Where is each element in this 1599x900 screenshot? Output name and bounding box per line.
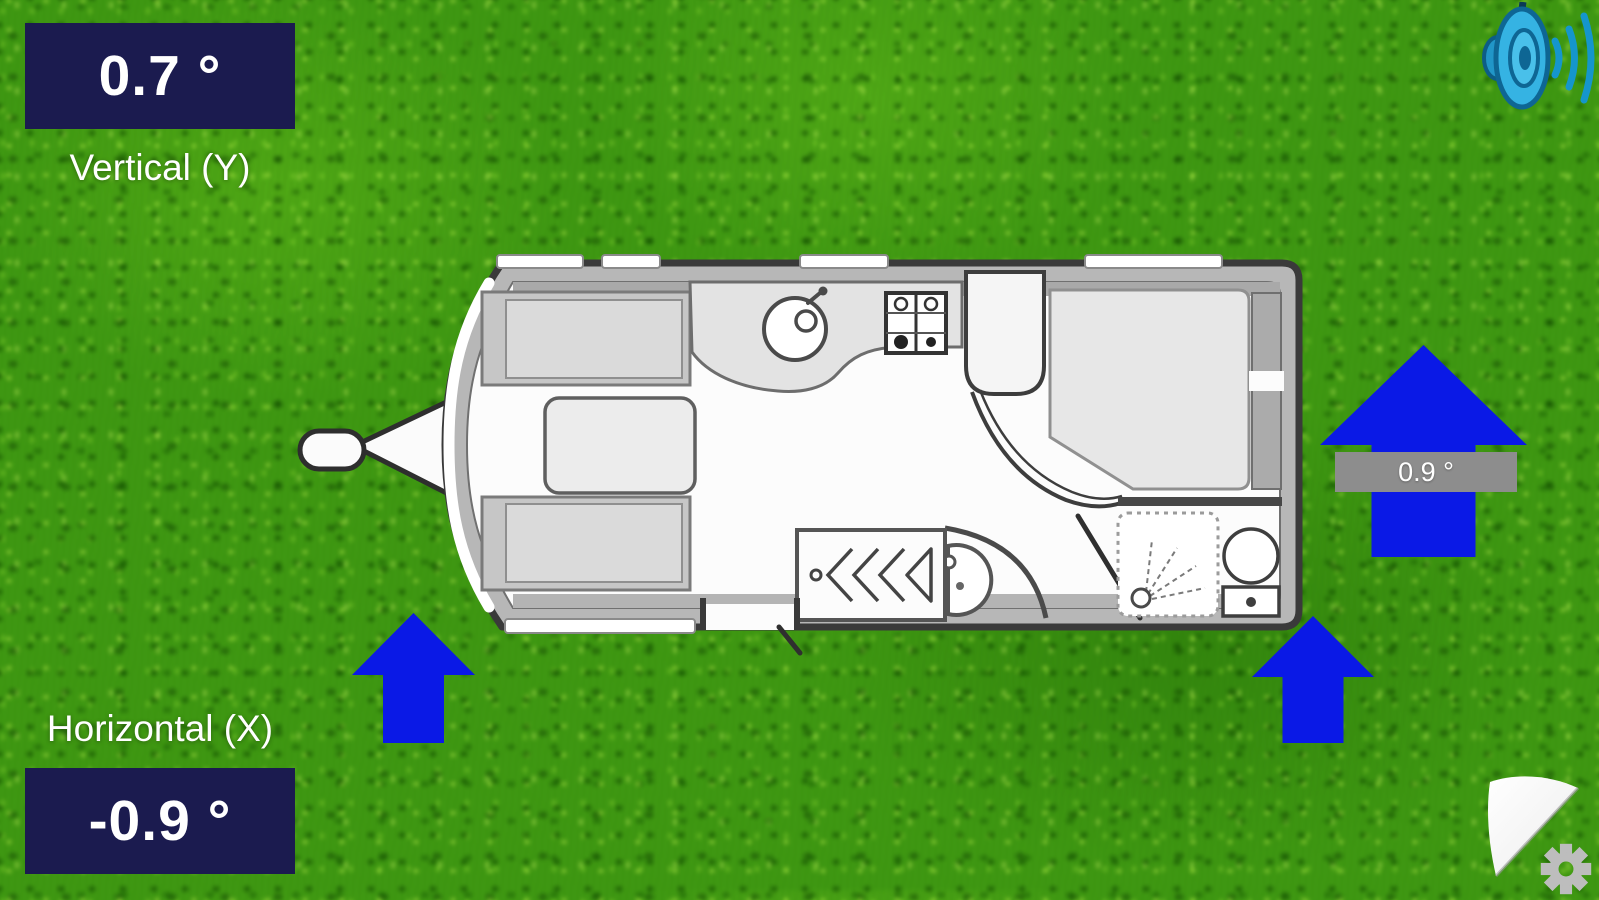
shower-icon (1118, 513, 1218, 616)
horizontal-angle-readout: -0.9 ° (25, 768, 295, 874)
vertical-axis-label: Vertical (Y) (25, 147, 295, 189)
sound-toggle-button[interactable] (1478, 2, 1599, 114)
table-icon (545, 398, 695, 493)
bed-icon (1050, 290, 1284, 489)
horizontal-axis-label: Horizontal (X) (25, 708, 295, 750)
entrance-door (700, 598, 800, 653)
divider-column (966, 272, 1044, 394)
toilet-icon (1223, 529, 1279, 616)
wardrobe-icon (797, 530, 945, 620)
settings-button[interactable] (1538, 841, 1594, 897)
vertical-angle-readout: 0.7 ° (25, 23, 295, 129)
hob-icon (886, 293, 946, 353)
level-arrow-rear-right (1252, 616, 1374, 743)
speaker-icon (1478, 2, 1599, 114)
level-arrow-front-left (352, 613, 475, 743)
caravan-floorplan-svg (290, 250, 1310, 660)
side-angle-badge: 0.9 ° (1335, 452, 1517, 492)
level-arrow-side (1320, 345, 1527, 557)
caravan-floorplan (290, 250, 1310, 660)
gear-icon (1538, 841, 1594, 897)
level-app-screen: 0.7 ° Vertical (Y) Horizontal (X) -0.9 ° (0, 0, 1599, 900)
